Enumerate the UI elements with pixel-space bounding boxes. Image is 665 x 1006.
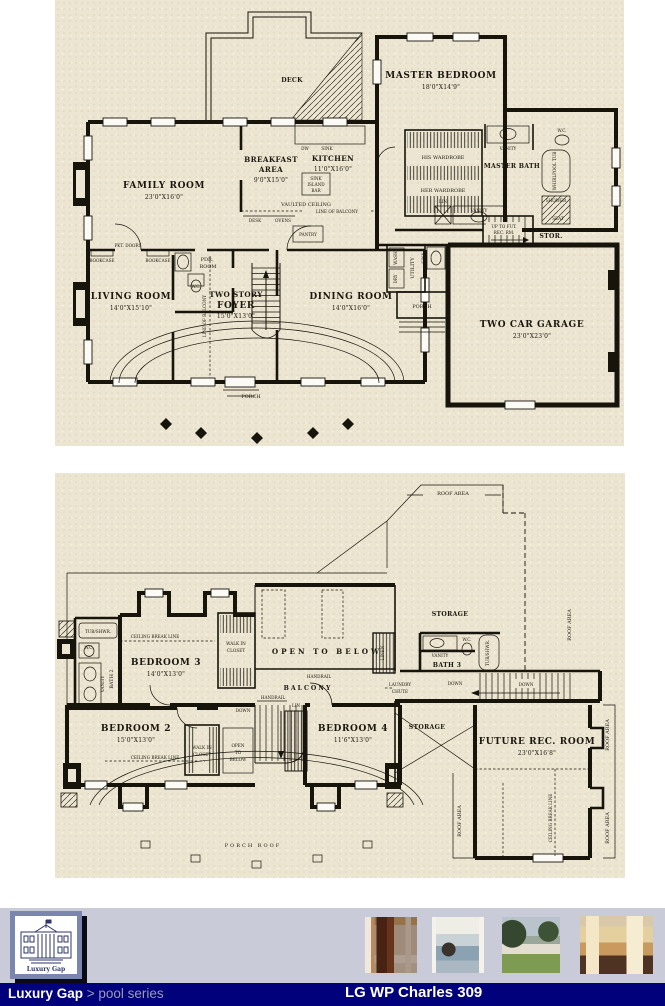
pdr-wc-label: W.C. (191, 284, 200, 289)
living-room-label: LIVING ROOM (91, 292, 172, 302)
garage-label: TWO CAR GARAGE (480, 320, 585, 330)
photo-thumbnail-exterior[interactable] (502, 917, 560, 973)
storage-top-label: STORAGE (432, 611, 469, 618)
seat-label: SEAT (552, 216, 564, 221)
to-small-label: TO (235, 750, 242, 755)
shower-label: SHOWER (546, 198, 567, 203)
breakfast-label2: AREA (258, 165, 283, 174)
bath3-label: BATH 3 (433, 662, 461, 669)
up-stairs-label: UP TO FUT. (491, 224, 516, 229)
photo-thumbnail-living-room[interactable] (580, 916, 653, 974)
logo-artwork: Luxury Gap (15, 916, 77, 974)
two-story-label: TWO STORY (209, 290, 263, 299)
up-stairs-label2: REC. RM. (494, 230, 515, 235)
living-room-dim: 14'0"X15'10" (110, 305, 152, 312)
porch-photo (432, 917, 484, 973)
powder-room-label2: ROOM (199, 264, 216, 270)
powder-room-label: PDR. (201, 257, 214, 263)
master-bedroom-label: MASTER BEDROOM (385, 71, 496, 81)
ovens-label: OVENS (275, 218, 291, 223)
line-of-balcony-label: LINE OF BALCONY (316, 209, 358, 214)
roof-area4-label: ROOF AREA (457, 805, 463, 837)
family-room-dim: 23'0"X16'0" (145, 194, 183, 201)
luxury-gap-logo[interactable]: Luxury Gap (10, 911, 82, 979)
sink-label: SINK (321, 146, 333, 151)
footer-strip: Luxury Gap (0, 908, 665, 983)
walkin-closet-label: CLOSET (227, 648, 245, 653)
bath3-wc-label: W.C. (462, 637, 471, 642)
vanity2-label: VANITY (470, 208, 488, 213)
line-of-balcony-vertical-label: LINE OF BALCONY (202, 295, 207, 337)
porch-label: PORCH (241, 394, 261, 400)
bedroom4-area: BEDROOM 4 11'6"X13'0" (305, 683, 403, 811)
bath2-label: BATH 2 (109, 669, 115, 688)
master-bedroom-dim: 18'0"X14'9" (422, 84, 460, 91)
dryer-label: DRY (393, 274, 398, 283)
bedroom4-label: BEDROOM 4 (318, 724, 388, 734)
bath2-vanity-label: VANITY (100, 675, 105, 693)
photo-thumbnail-porch[interactable] (432, 917, 484, 973)
rear-porch-label: PORCH (412, 304, 432, 310)
porch-roof-label: PORCH ROOF (225, 843, 281, 849)
utility-sink-label: SINK (421, 251, 426, 263)
pantry-label: PANTRY (299, 232, 317, 237)
laundry-label: LAUNDRY (389, 682, 411, 687)
kitchen-area: BREAKFAST AREA 9'0"X15'0" KITCHEN 11'0"X… (241, 126, 377, 242)
bath3-tub-label: TUB/SHWR. (485, 640, 490, 666)
walkin-label: WALK IN (226, 641, 246, 646)
ceiling-break3-label: CEILING BREAK LINE (548, 794, 553, 843)
family-room-label: FAMILY ROOM (123, 181, 205, 191)
deck: DECK (206, 12, 362, 122)
storage2-label: STORAGE (409, 724, 446, 731)
future-rec-label: FUTURE REC. ROOM (479, 737, 596, 747)
front-entry-photo (365, 917, 417, 973)
island-label: ISLAND (307, 182, 325, 187)
rec-room-area: STORAGE FUTURE REC. ROOM 23'0"X16'8" CEI… (395, 701, 615, 862)
kitchen-dim: 11'0"X16'0" (314, 166, 352, 173)
his-wardrobe-label: HIS WARDROBE (422, 155, 465, 161)
kitchen-label: KITCHEN (312, 154, 354, 163)
photo-thumbnail-front-entry[interactable] (365, 917, 417, 973)
pocket-doors-label: PKT. DOORS (114, 243, 141, 248)
roof-area2-label: ROOF AREA (605, 719, 611, 751)
bedroom2-dim: 15'0"X13'0" (117, 737, 155, 744)
garage-dim: 23'0"X23'0" (513, 333, 551, 340)
open-small-label: OPEN (232, 743, 245, 748)
bottom-bar: Luxury Gap > pool series LG WP Charles 3… (0, 983, 665, 1006)
bookcase-label: BOOKCASE (145, 258, 170, 263)
wc-label: W.C. (557, 128, 566, 133)
breadcrumb-brand-link[interactable]: Luxury Gap (8, 986, 83, 1001)
bedroom4-dim: 11'6"X13'0" (334, 737, 372, 744)
open-to-below-label: OPEN TO BELOW (272, 647, 382, 656)
desk-label: DESK (249, 218, 262, 223)
foyer-dim: 15'0"X13'0" (217, 313, 255, 320)
bedroom2-area: BEDROOM 2 15'0"X13'0" CEILING BREAK LINE… (61, 685, 255, 811)
bath2-wc-label: W.C. (84, 645, 93, 650)
island-sink-label: SINK (310, 176, 322, 181)
page: { "floor1": { "deck": "DECK", "family_ro… (0, 0, 665, 1006)
dining-room-label: DINING ROOM (309, 292, 392, 302)
whirlpool-tub-label: WHIRLPOOL TUB (552, 152, 557, 191)
dishwasher-label: DW (301, 146, 309, 151)
washer-label: WASH (393, 251, 398, 265)
breadcrumb-path: > pool series (83, 986, 164, 1001)
linen-closet-label: LINEN (380, 645, 385, 660)
exterior-photo (502, 917, 560, 973)
storage-label: STOR. (539, 233, 562, 240)
tub-shower-label: TUB/SHWR. (85, 629, 111, 634)
bedroom3-dim: 14'0"X13'0" (147, 671, 185, 678)
bath3-area: LINEN VANITY W.C. TUB/SHWR. BATH 3 LAUND… (373, 633, 600, 701)
down3-label: DOWN (519, 682, 534, 687)
bookcase-label: BOOKCASE (89, 258, 114, 263)
breakfast-label: BREAKFAST (244, 155, 298, 164)
laundry-chute-label: CHUTE (392, 689, 408, 694)
bath3-vanity-label: VANITY (431, 653, 449, 658)
living-room-photo (580, 916, 653, 974)
first-floor-plan: DECK FAMILY ROOM 23'0"X16'0" BOOKCASE BO… (55, 0, 624, 446)
future-rec-dim: 23'0"X16'8" (518, 750, 556, 757)
foyer-label: FOYER (217, 301, 255, 311)
master-bath-label: MASTER BATH (484, 163, 540, 170)
down-label: DOWN (236, 708, 251, 713)
breadcrumb: Luxury Gap > pool series (8, 986, 164, 1001)
bedroom3-label: BEDROOM 3 (131, 658, 201, 668)
stairs-handrail-label: HANDRAIL (261, 695, 286, 700)
roof-area3-label: ROOF AREA (605, 812, 611, 844)
bar-label: BAR (311, 188, 321, 193)
walkin2-label: WALK IN (192, 745, 212, 750)
master-suite: MASTER BEDROOM 18'0"X14'9" HIS WARDROBE … (385, 71, 570, 224)
ceiling-break-label: CEILING BREAK LINE (131, 634, 180, 639)
vanity-label: VANITY (499, 146, 517, 151)
utility-label: UTILITY (410, 257, 416, 279)
breakfast-dim: 9'0"X15'0" (254, 177, 288, 184)
handrail-label: HANDRAIL (307, 674, 332, 679)
logo-caption: Luxury Gap (15, 966, 77, 973)
lin-label: LIN (292, 703, 300, 708)
plan-title: LG WP Charles 309 (345, 984, 482, 1001)
roof-area-label: ROOF AREA (437, 491, 469, 497)
dining-room-dim: 14'0"X16'0" (332, 305, 370, 312)
roof-area-right-label: ROOF AREA (567, 609, 573, 641)
bedroom2-label: BEDROOM 2 (101, 724, 171, 734)
down2-label: DOWN (448, 681, 463, 686)
rear-service: WASH DRY UTILITY SINK PORCH TWO CAR GARA… (387, 245, 584, 340)
linen-label: LIN (439, 199, 447, 204)
front-rooms: LIVING ROOM 14'0"X15'10" PDR. ROOM W.C. … (91, 253, 393, 396)
her-wardrobe-label: HER WARDROBE (421, 188, 466, 194)
vaulted-ceiling-label: VAULTED CEILING (280, 202, 331, 208)
second-floor-plan: ROOF AREA ROOF AREA STORAGE TUB/SHWR. W.… (55, 473, 625, 878)
deck-label: DECK (281, 77, 303, 84)
